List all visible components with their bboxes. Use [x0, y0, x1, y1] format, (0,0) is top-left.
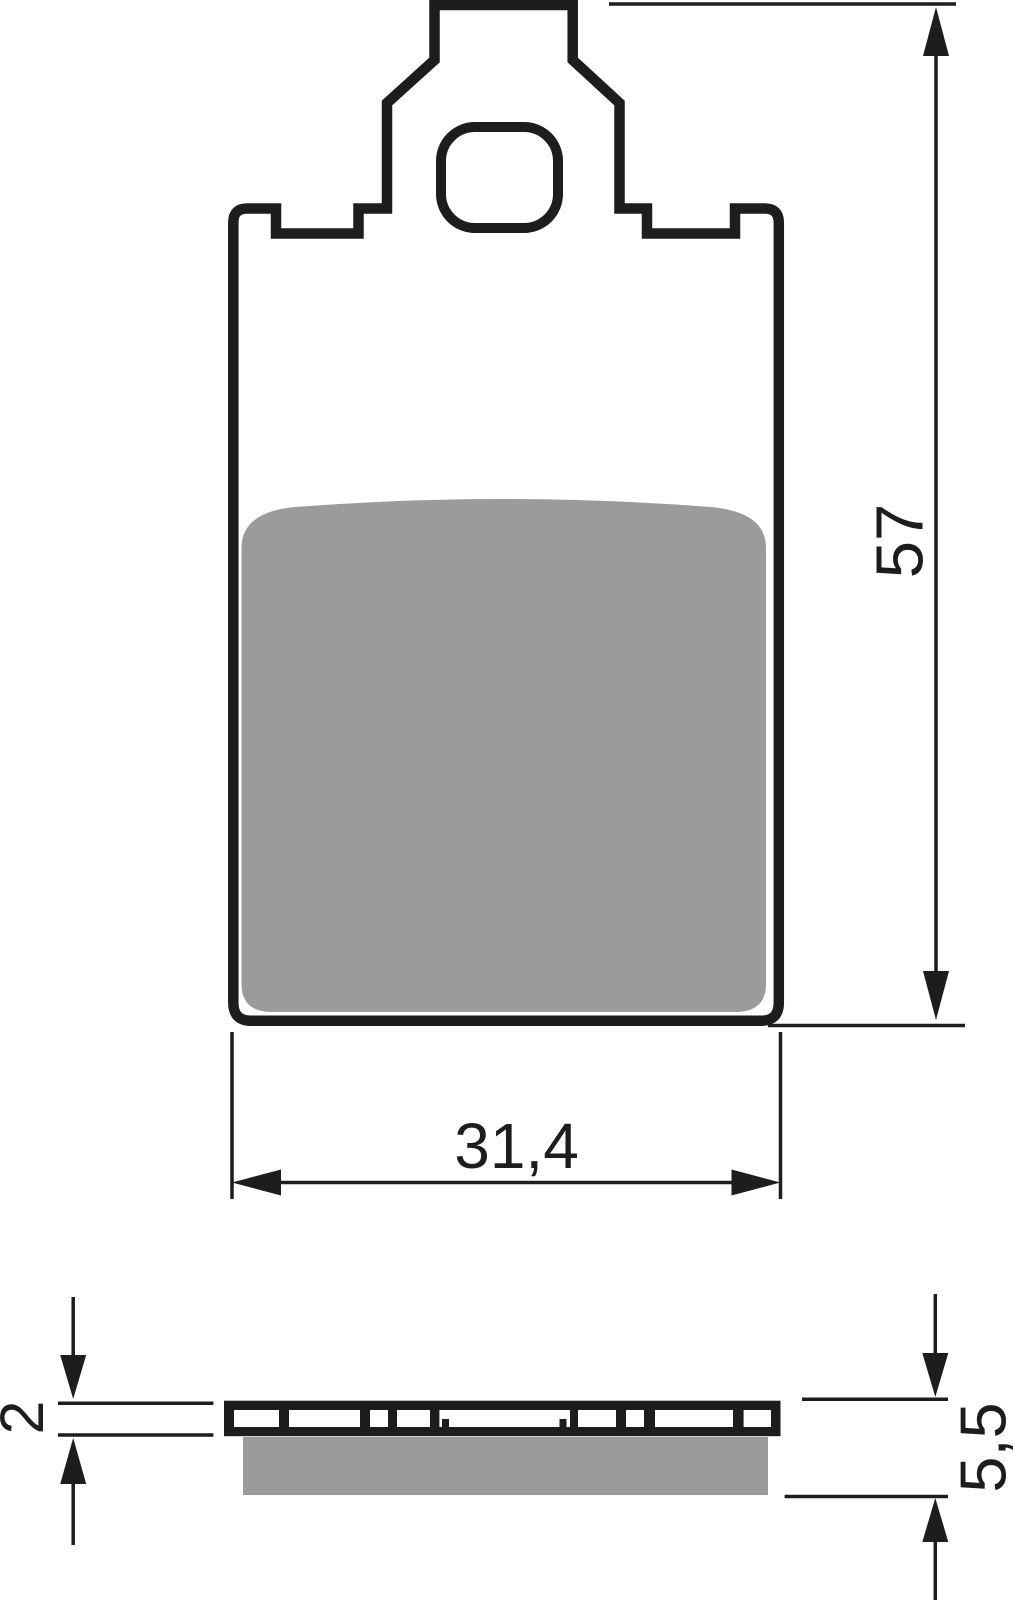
svg-text:5,5: 5,5: [947, 1402, 1013, 1492]
svg-text:2: 2: [0, 1401, 56, 1435]
svg-text:57: 57: [863, 504, 938, 579]
svg-text:31,4: 31,4: [454, 1110, 579, 1182]
